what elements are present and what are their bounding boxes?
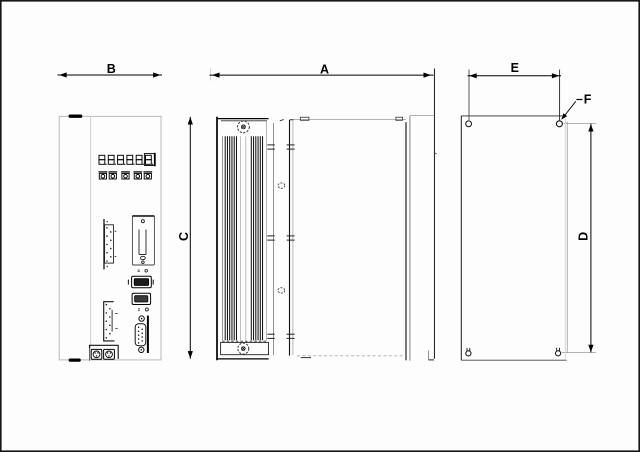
svg-text:B: B [107,62,116,76]
svg-text:C: C [177,232,191,241]
svg-text:F: F [584,92,592,106]
svg-text:A: A [320,62,329,76]
svg-text:E: E [511,61,519,75]
svg-text:D: D [577,232,591,241]
